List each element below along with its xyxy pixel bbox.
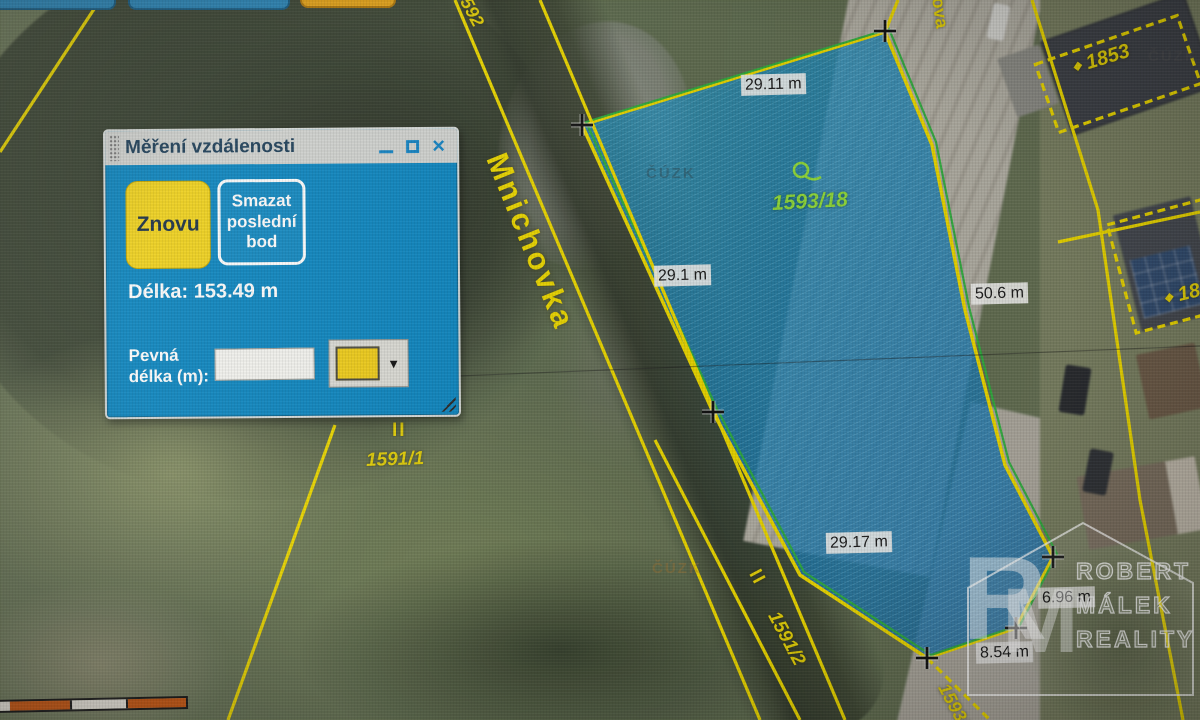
distance-label: 29.11 m [741,73,806,96]
distance-label: 6.96 m [1038,586,1095,608]
toolbar-button-cutoff[interactable] [128,0,290,10]
toolbar-button-cutoff-yellow[interactable] [300,0,396,8]
cuzk-watermark: ČÚZK [652,560,702,577]
delete-last-point-button[interactable]: Smazat poslední bod [217,179,306,266]
parcel-label-1591-1: 1591/1 [366,448,425,472]
map-application-screen: 29.11 m 29.1 m 50.6 m 29.17 m 6.96 m 8.5… [0,0,1200,720]
distance-label: 29.1 m [654,264,711,286]
parcel-label-1593-18: 1593/18 [771,188,848,216]
dialog-titlebar[interactable]: Měření vzdálenosti × [105,129,457,165]
dialog-title: Měření vzdálenosti [125,135,379,159]
cuzk-watermark: ČÚZK [646,165,696,182]
distance-label: 50.6 m [971,282,1028,304]
line-color-dropdown[interactable]: ▼ [328,339,408,388]
close-icon[interactable]: × [432,135,445,157]
distance-label: 29.17 m [826,531,892,554]
chevron-down-icon: ▼ [380,356,408,371]
landuse-mark-ii: II [392,420,407,442]
titlebar-grip-dots [109,135,119,161]
street-label: ova [927,0,952,30]
maximize-icon[interactable] [406,140,419,153]
total-length-text: Délka: 153.49 m [128,280,278,304]
resize-grip[interactable] [438,394,456,412]
building-marker-icon: ◆ [1163,291,1174,305]
minimize-icon[interactable] [379,150,393,153]
fixed-length-label: Pevná délka (m): [128,345,209,388]
toolbar-button-cutoff[interactable] [0,0,116,10]
fixed-length-input[interactable] [214,348,314,381]
distance-label: 8.54 m [976,641,1033,663]
distance-measurement-dialog: Měření vzdálenosti × Znovu Smazat posled… [103,127,461,419]
cuzk-watermark: ČÚZK [1148,48,1198,65]
color-swatch-yellow [336,346,380,380]
again-button[interactable]: Znovu [125,180,211,269]
